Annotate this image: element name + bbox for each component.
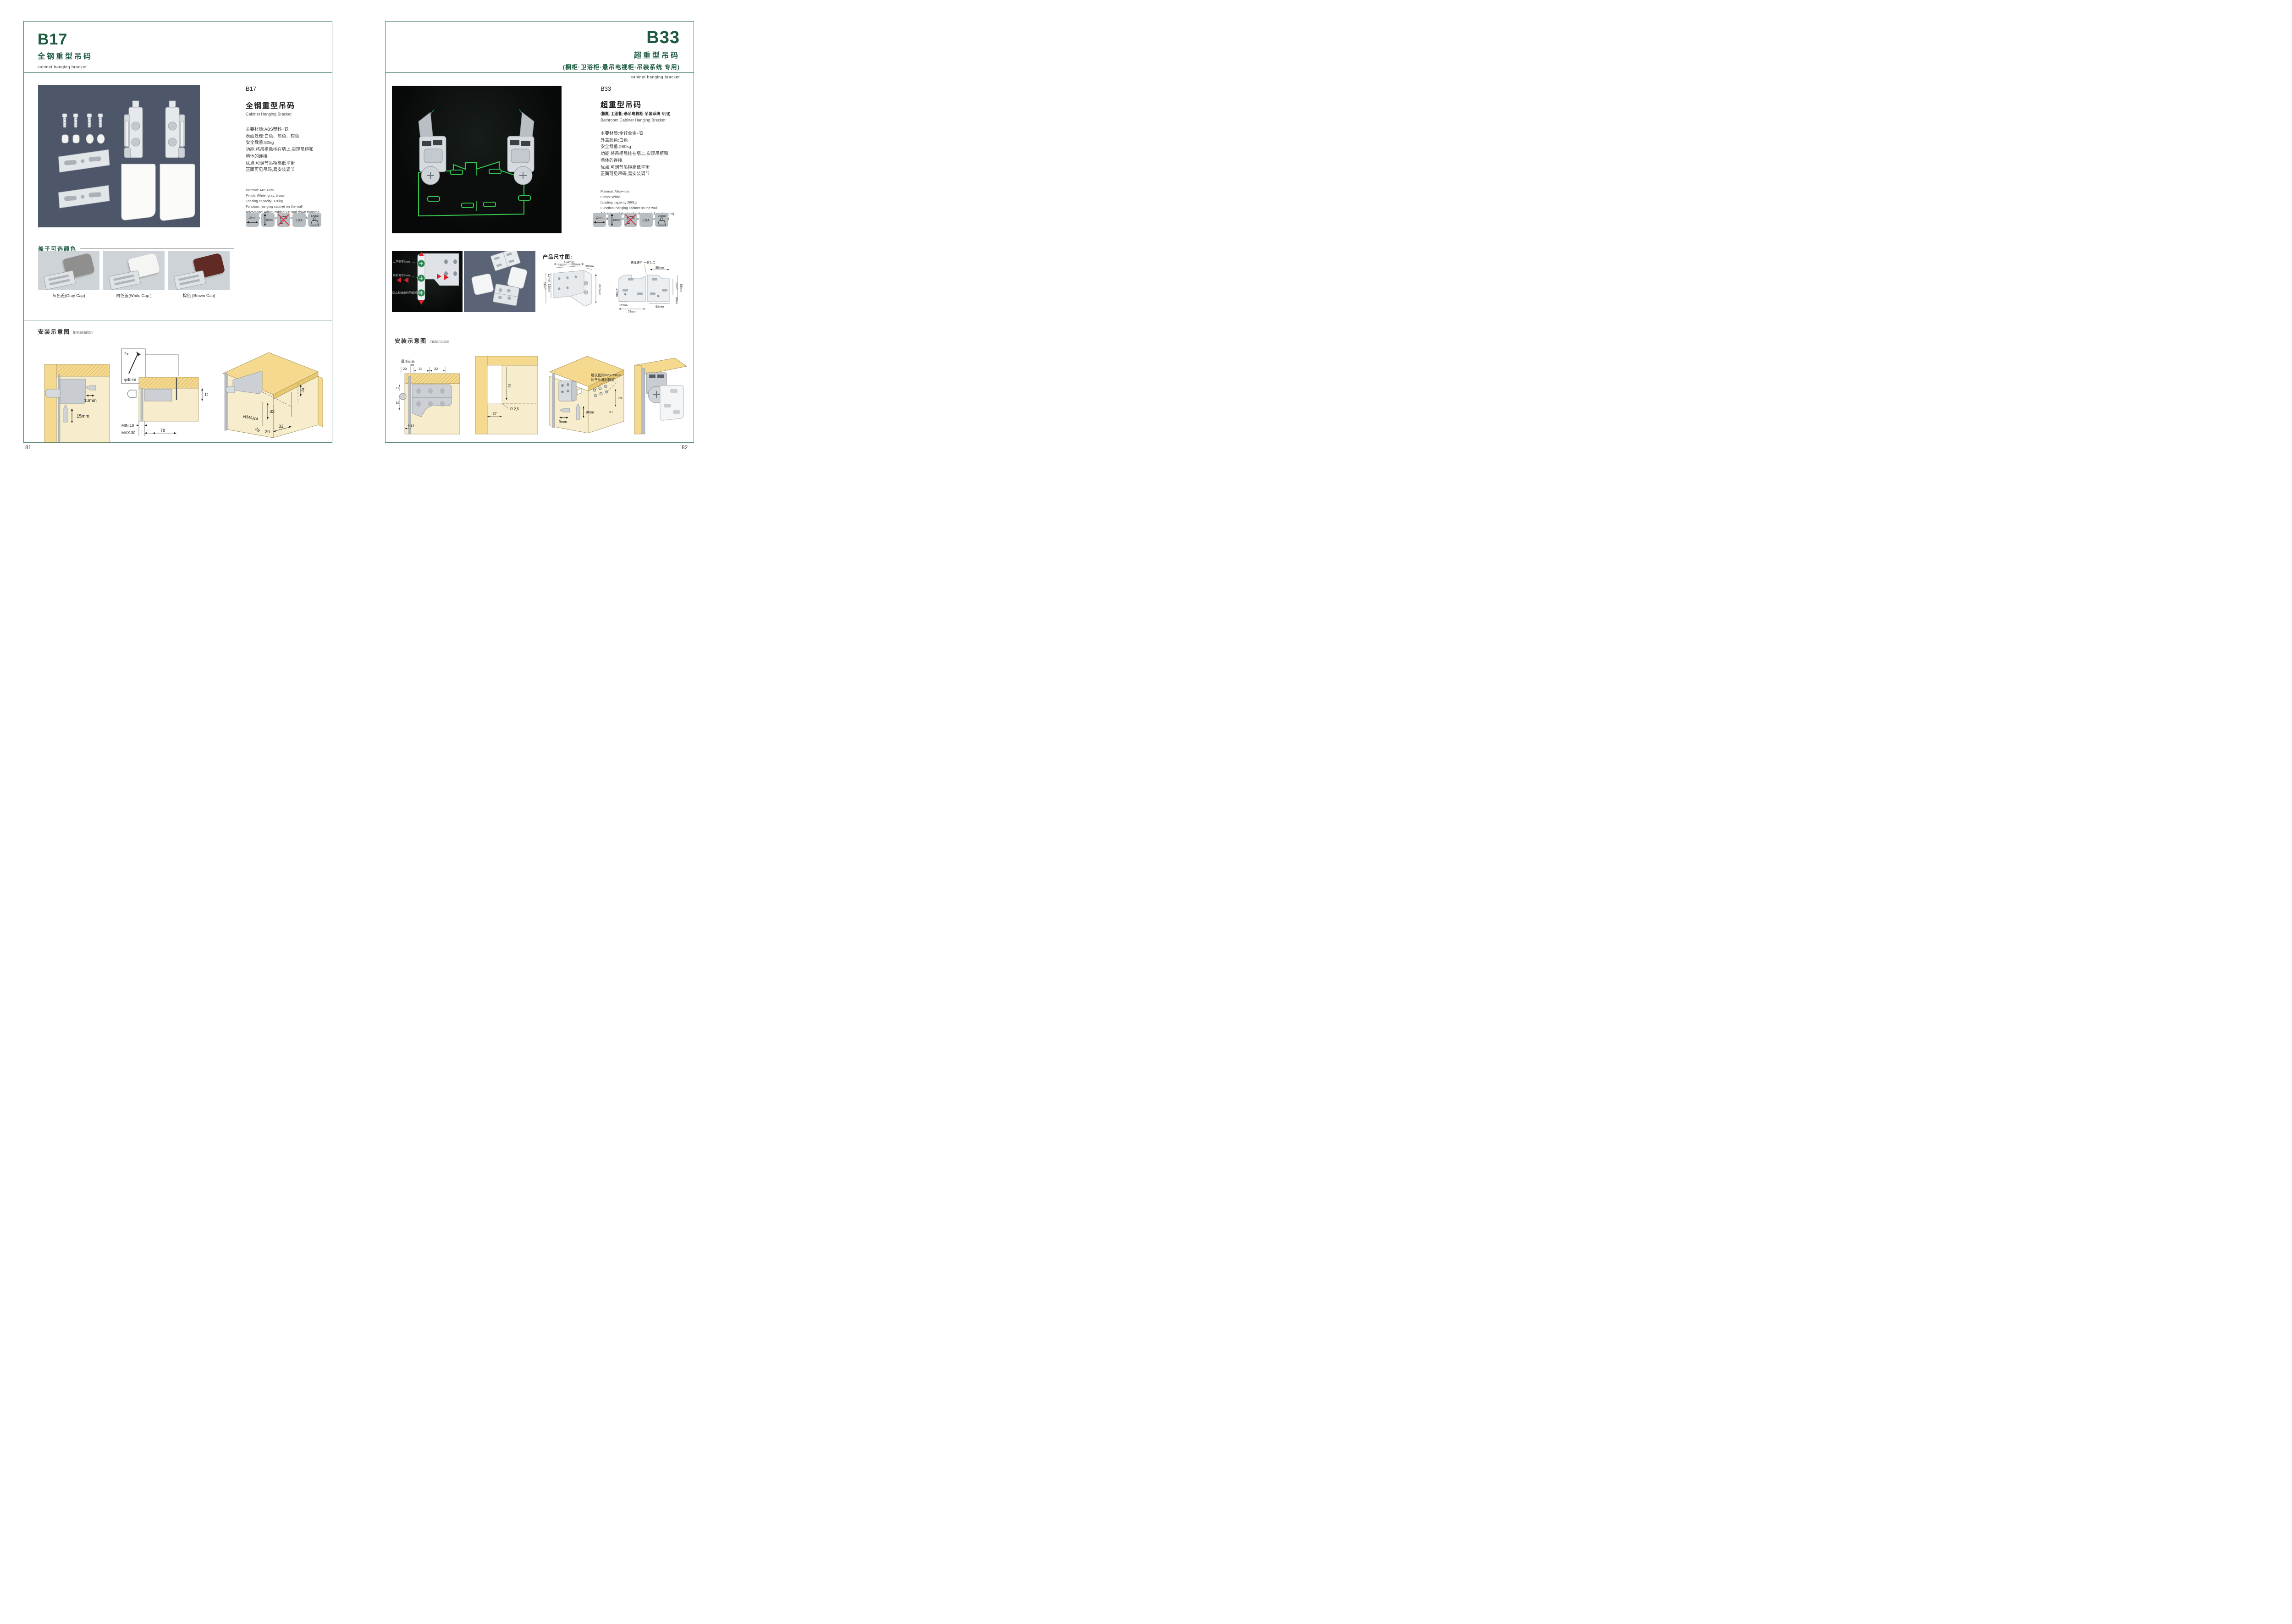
screws	[62, 114, 103, 127]
metal-bracket-part	[493, 284, 519, 306]
cap-swatch-brown	[168, 251, 230, 290]
product-code-heading: B33	[563, 29, 680, 46]
svg-text:78: 78	[507, 384, 512, 388]
svg-text:防止柜体翻转的锁紧螺丝: 防止柜体翻转的锁紧螺丝	[392, 291, 423, 295]
svg-text:32mm: 32mm	[572, 263, 580, 266]
svg-text:32: 32	[419, 367, 422, 371]
cap-label-gray: 灰色盖(Gray Cap)	[38, 292, 99, 298]
dim-min-max: MIN.10 MAX.30	[121, 421, 147, 436]
svg-text:17mm: 17mm	[615, 288, 618, 297]
dimension-drawings: 104mm 32mm 32mm 39mm 80.5mm 11mm 32mm 51…	[540, 259, 691, 314]
svg-text:9mm: 9mm	[559, 420, 567, 424]
caps-rule	[80, 248, 234, 248]
svg-text:10mm: 10mm	[84, 398, 97, 403]
product-title-en: cabinet hanging bracket	[563, 75, 680, 79]
bracket-dimension-drawing: 104mm 32mm 32mm 39mm 80.5mm 11mm 32mm 51…	[543, 261, 601, 306]
install-diagram-mounted	[631, 352, 690, 440]
hanging-brackets	[124, 101, 185, 158]
caps-row	[38, 251, 230, 290]
panel-thickness-icon: 15mm	[261, 213, 275, 227]
svg-text:10mm: 10mm	[248, 216, 256, 220]
svg-text:63mm: 63mm	[656, 305, 664, 308]
installation-title: 安装示意图Installation	[395, 337, 449, 345]
dim-13: 13	[201, 388, 208, 401]
svg-text:15mm: 15mm	[265, 219, 273, 222]
svg-text:上下调节9mm: 上下调节9mm	[393, 260, 410, 264]
load-capacity-icon: 260Kg	[655, 213, 668, 227]
install-diagram-front: 最小间距 20 10 32 32	[395, 352, 466, 440]
svg-text:13mm: 13mm	[612, 219, 620, 222]
spec-line: 功能:将吊柜悬挂在墙上,实现吊柜和	[246, 147, 337, 154]
spec-line: 安全载重:80kg	[246, 140, 337, 147]
installation-title: 安装示意图Installation	[38, 328, 93, 336]
header-divider	[24, 72, 332, 73]
svg-text:的平头螺丝固定: 的平头螺丝固定	[591, 377, 615, 382]
left-dims: 11 32	[396, 385, 400, 410]
spec-name-en: Bathroom Cabinet Hanging Bracket	[601, 118, 692, 122]
feature-icons-b33: 12mm 13mm	[593, 213, 668, 227]
white-cap-part	[507, 266, 528, 289]
spec-name-sub: (橱柜·卫浴柜·悬吊电视柜·吊装系统 专用)	[601, 111, 692, 116]
spec-column-b17: B17 全钢重型吊码 Cabinet Hanging Bracket 主要材质:…	[246, 85, 337, 220]
spec-line: 外盖颜色:白色	[601, 138, 692, 144]
svg-text:78: 78	[160, 428, 165, 433]
install-diagram-screw-note: 建议使用M6x12mm 的平头螺丝固定 9mm	[547, 352, 627, 440]
svg-text:13: 13	[204, 392, 208, 397]
svg-text:9mm: 9mm	[586, 410, 594, 414]
spec-name-en: Cabinet Hanging Bracket	[246, 112, 337, 116]
page-b17: B17 全钢重型吊码 cabinet hanging bracket	[23, 21, 332, 443]
install-diagram-wall-section: 10mm 15mm	[42, 361, 113, 448]
dim-78: 78	[144, 428, 176, 434]
svg-text:32: 32	[270, 409, 275, 414]
svg-text:37: 37	[609, 410, 613, 414]
spec-line-en: Finish: White, gray, brown	[246, 193, 337, 198]
svg-text:LGA: LGA	[296, 218, 303, 222]
svg-text:2x: 2x	[124, 352, 129, 356]
spec-line: 正面可见吊码,易安装调节	[246, 167, 337, 174]
svg-text:120Kg: 120Kg	[311, 215, 319, 218]
svg-text:20: 20	[403, 367, 407, 371]
svg-text:77mm: 77mm	[628, 310, 636, 314]
page-header-b17: B17 全钢重型吊码 cabinet hanging bracket	[38, 32, 93, 69]
spec-column-b33: B33 超重型吊码 (橱柜·卫浴柜·悬吊电视柜·吊装系统 专用) Bathroo…	[601, 85, 692, 222]
svg-text:φ4mm: φ4mm	[124, 377, 136, 382]
spec-line: 安全载重:260kg	[601, 144, 692, 151]
svg-text:55mm: 55mm	[679, 284, 683, 292]
product-title-sub: (橱柜·卫浴柜·悬吊电视柜·吊装系统 专用)	[563, 62, 680, 71]
svg-text:10: 10	[410, 363, 414, 367]
product-code-heading: B17	[38, 32, 93, 47]
installation-title-cn: 安装示意图	[395, 338, 427, 344]
svg-text:MAX.30: MAX.30	[121, 430, 136, 435]
bracket-base-image	[109, 270, 141, 290]
installation-diagrams-b33: 最小间距 20 10 32 32	[395, 352, 690, 440]
svg-text:37: 37	[493, 412, 497, 416]
spec-line: 墙体的连接	[601, 158, 692, 165]
svg-text:78: 78	[618, 396, 622, 400]
product-photo-b33-graphic	[392, 86, 562, 233]
svg-text:39mm: 39mm	[585, 265, 594, 268]
white-cap-part	[471, 273, 494, 295]
mounted-bracket	[646, 373, 683, 420]
top-dims: 20 10 32 32	[401, 363, 445, 373]
product-photo-b17-graphic	[38, 85, 200, 227]
svg-text:R 2,5: R 2,5	[510, 407, 519, 411]
svg-text:32: 32	[279, 424, 284, 429]
product-photo-b17	[38, 85, 200, 227]
no-drill-icon	[624, 213, 637, 227]
cap-swatch-white	[103, 251, 165, 290]
svg-text:LGA: LGA	[643, 218, 650, 222]
install-diagram-isometric: 34 32 RMAX4 18 20 32	[215, 348, 325, 440]
panel-thickness-icon: 13mm	[608, 213, 622, 227]
spec-line: 功能:将吊柜悬挂在墙上,实现吊柜和	[601, 151, 692, 158]
spec-line: 表面处理:白色、灰色、棕色	[246, 133, 337, 140]
svg-text:55mm: 55mm	[656, 266, 664, 270]
product-photo-b33	[392, 86, 562, 233]
svg-text:260Kg: 260Kg	[658, 215, 666, 218]
installation-title-cn: 安装示意图	[38, 329, 70, 335]
installation-title-en: Installation	[430, 339, 449, 344]
cap-label-brown: 棕色 (Brown Cap)	[168, 292, 230, 298]
svg-text:前后调节9mm: 前后调节9mm	[393, 274, 410, 277]
install-diagram-screw-section: 2x φ4mm 13	[121, 348, 208, 440]
green-adjust-screws	[418, 260, 425, 297]
lga-cert-icon: LGA	[639, 213, 653, 227]
load-capacity-icon: 120Kg	[308, 213, 321, 227]
adjustment-photo: 上下调节9mm 前后调节9mm 防止柜体翻转的锁紧螺丝	[392, 251, 463, 312]
svg-text:4-14: 4-14	[408, 424, 414, 428]
page-b33: B33 超重型吊码 (橱柜·卫浴柜·悬吊电视柜·吊装系统 专用) cabinet…	[385, 21, 694, 443]
spec-line: 正面可见吊码,易安装调节	[601, 171, 692, 178]
spec-line-en: Finish: White	[601, 194, 692, 200]
svg-text:32mm: 32mm	[547, 284, 551, 292]
svg-text:11: 11	[396, 386, 399, 390]
installation-diagrams-b17: 10mm 15mm 2x φ4mm	[38, 348, 322, 440]
spec-line-en: Function: hanging cabinet on the wall	[601, 205, 692, 211]
svg-text:11mm: 11mm	[547, 274, 551, 282]
spec-line: 墙体的连接	[246, 154, 337, 160]
spec-line-en: Material: Alloy+iron	[601, 189, 692, 194]
spec-line-en: Material: ABS+iron	[246, 187, 337, 193]
svg-text:80.5mm: 80.5mm	[598, 284, 601, 295]
svg-text:12mm: 12mm	[619, 304, 628, 307]
install-diagram-side-panel: 78 R 2,5 37	[472, 352, 540, 437]
cap-swatch-gray	[38, 251, 99, 290]
white-covers	[121, 164, 195, 220]
panel-width-icon: 10mm	[246, 213, 259, 227]
svg-text:MIN.10: MIN.10	[121, 423, 134, 428]
spec-line-en: Function: hanging cabinet on the wall	[246, 204, 337, 209]
svg-text:15mm: 15mm	[77, 414, 89, 419]
product-title-en: cabinet hanging bracket	[38, 65, 93, 69]
cap-label-white: 白色盖(White Cap )	[103, 292, 165, 298]
product-title-cn: 全钢重型吊码	[38, 50, 93, 61]
section-divider	[24, 320, 332, 320]
spec-line-en: Loading capacity:260kg	[601, 200, 692, 205]
spec-line: 优点:可调节吊柜高低平衡	[246, 160, 337, 167]
product-title-cn: 超重型吊码	[563, 49, 680, 60]
svg-text:连体挂片 一分为二: 连体挂片 一分为二	[631, 260, 656, 264]
spec-list-cn: 主要材质:ABS塑料+铁 表面处理:白色、灰色、棕色 安全载重:80kg 功能:…	[246, 127, 337, 174]
parts-photo	[464, 251, 535, 312]
spec-name-cn: 超重型吊码	[601, 99, 692, 110]
svg-text:20: 20	[265, 429, 270, 435]
lga-cert-icon: LGA	[292, 213, 306, 227]
svg-text:32: 32	[434, 367, 438, 371]
wall-anchors	[62, 134, 105, 143]
bracket-base-image	[44, 270, 76, 290]
svg-text:建议使用M6x12mm: 建议使用M6x12mm	[591, 373, 621, 377]
no-drill-icon	[277, 213, 290, 227]
header-divider	[386, 72, 694, 73]
spec-code: B17	[246, 85, 337, 92]
spec-name-cn: 全钢重型吊码	[246, 99, 337, 110]
feature-icons-b17: 10mm 15mm	[246, 213, 321, 227]
svg-text:32mm: 32mm	[558, 264, 566, 267]
spec-line: 主要材质:ABS塑料+铁	[246, 127, 337, 133]
svg-text:32: 32	[396, 401, 399, 405]
catalog-spread: B17 全钢重型吊码 cabinet hanging bracket	[0, 0, 708, 462]
spec-line-en: Loading capacity: 120kg	[246, 198, 337, 204]
spec-line: 优点:可调节吊柜高低平衡	[601, 165, 692, 171]
spec-list-cn: 主要材质:全锌合金+铁 外盖颜色:白色 安全载重:260kg 功能:将吊柜悬挂在…	[601, 131, 692, 178]
page-number-right: 82	[682, 444, 688, 451]
installation-title-en: Installation	[73, 330, 93, 335]
spec-code: B33	[601, 85, 692, 92]
plate-dimension-drawing: 连体挂片 一分为二 55mm 39mm 55mm 8mm 17mm	[615, 260, 683, 314]
wall-plates	[58, 149, 110, 208]
bracket-base-image	[174, 270, 206, 290]
spec-line: 主要材质:全锌合金+铁	[601, 131, 692, 138]
page-header-b33: B33 超重型吊码 (橱柜·卫浴柜·悬吊电视柜·吊装系统 专用) cabinet…	[563, 29, 680, 79]
page-number-left: 81	[25, 444, 31, 451]
svg-text:51mm: 51mm	[543, 282, 546, 290]
svg-text:12mm: 12mm	[595, 216, 603, 220]
panel-width-icon: 12mm	[593, 213, 606, 227]
